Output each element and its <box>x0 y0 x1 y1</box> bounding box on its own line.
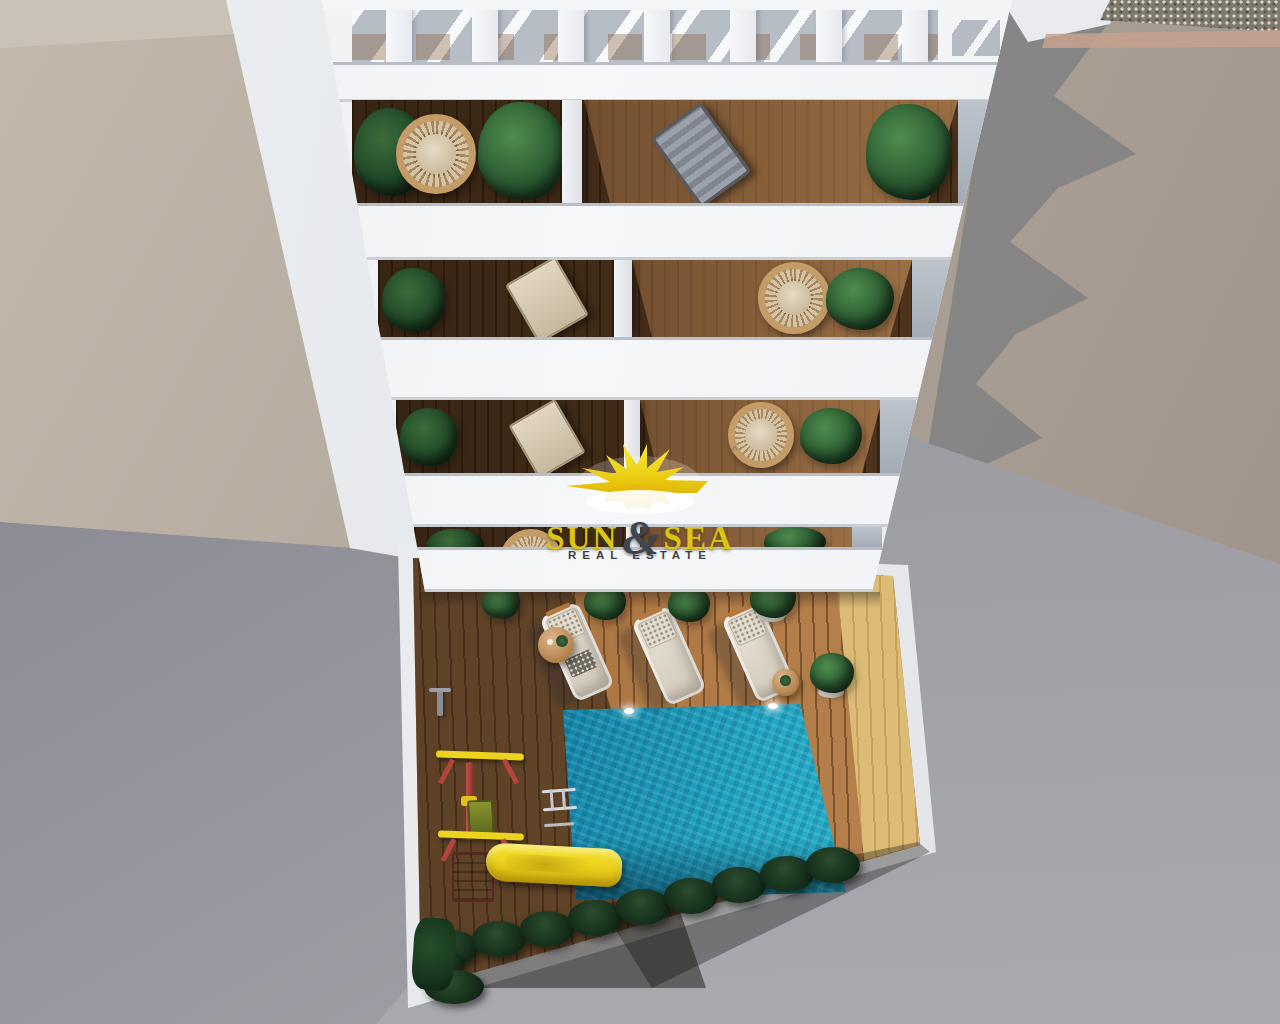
pergola-slat <box>558 8 584 62</box>
grass-patch <box>411 917 458 992</box>
table-plant <box>780 675 791 686</box>
balcony-plant <box>426 529 484 547</box>
hedge-bush <box>712 867 766 903</box>
hedge-bush <box>806 847 860 883</box>
ladder-rung <box>562 789 566 810</box>
pool-ladder <box>541 782 581 836</box>
balcony-plant <box>382 268 446 332</box>
hanging-rattan-chair <box>396 114 476 194</box>
balcony-divider <box>562 100 582 203</box>
hedge-bush <box>568 900 622 936</box>
lounge-chair <box>508 400 586 473</box>
pergola-slat <box>816 8 842 62</box>
slide-channel <box>504 853 605 874</box>
shower-arm <box>429 688 451 692</box>
balcony-divider <box>626 527 640 547</box>
balcony-interior-2 <box>396 400 882 473</box>
roof-opening <box>952 20 1000 56</box>
pool-light <box>624 708 634 714</box>
balcony-side-wall <box>852 527 882 547</box>
ladder-rail <box>542 788 576 793</box>
balcony-interior-4 <box>352 100 958 203</box>
hanging-rattan-chair <box>728 402 794 468</box>
roof-beam <box>322 0 1012 10</box>
ladder-rung <box>550 790 554 811</box>
pergola-slat <box>386 8 412 62</box>
pergola-slat <box>644 8 670 62</box>
building-drop-shadow <box>420 592 880 608</box>
balcony-plant <box>478 102 566 200</box>
hedge-bush <box>616 889 670 925</box>
hanging-rattan-chair <box>758 262 830 334</box>
pool-shower <box>437 688 443 716</box>
side-table <box>772 669 799 696</box>
side-table <box>538 627 574 663</box>
aerial-property-render: ^ SUN & SEA REAL ESTATE <box>0 0 1280 1024</box>
balcony-plant <box>800 408 862 464</box>
pergola-slat <box>730 8 756 62</box>
ladder-rail <box>543 806 577 811</box>
play-slide <box>485 842 623 887</box>
table-plant <box>556 635 568 647</box>
balcony-plant <box>866 104 952 200</box>
balcony-plant <box>400 408 458 466</box>
potted-plant <box>810 653 854 693</box>
hedge-bush <box>520 911 574 947</box>
pool-light <box>768 703 778 709</box>
balcony-plant <box>826 268 894 330</box>
lounge-chair <box>505 260 589 337</box>
pergola-slat <box>902 8 928 62</box>
ladder-rail <box>544 822 574 827</box>
hedge-bush <box>472 921 526 957</box>
table-cup <box>547 639 553 645</box>
balcony-divider <box>624 400 640 473</box>
hanging-rattan-chair <box>500 529 562 547</box>
balcony-interior-3 <box>378 260 912 337</box>
pergola-slat <box>472 8 498 62</box>
balcony-interior-1 <box>414 527 854 547</box>
hedge-bush <box>664 878 718 914</box>
balcony-divider <box>614 260 632 337</box>
